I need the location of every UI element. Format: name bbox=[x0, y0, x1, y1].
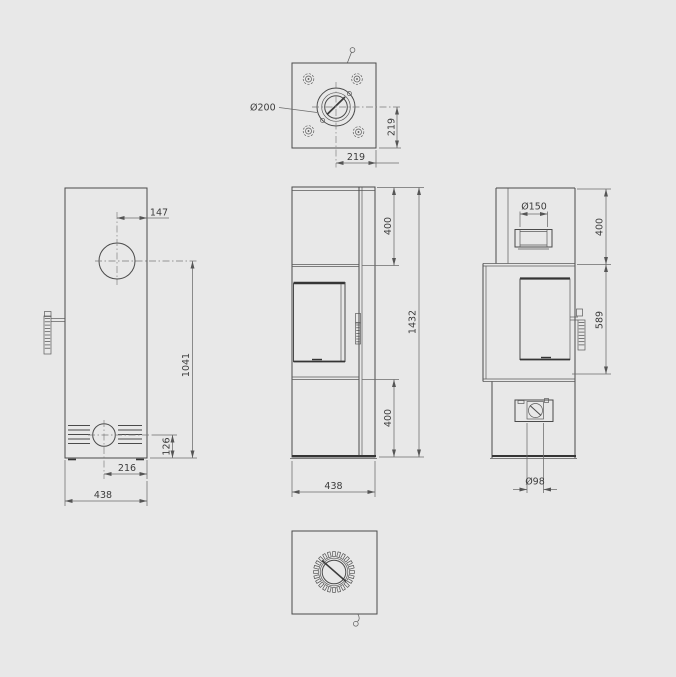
dim-label: Ø200 bbox=[250, 103, 276, 114]
dim-left-1041: 1041 bbox=[150, 261, 197, 458]
fastener-icon bbox=[353, 127, 364, 138]
dim-label: Ø150 bbox=[521, 202, 547, 213]
dim-right-589: 589 bbox=[572, 265, 611, 375]
dim-top-flue-diameter: Ø200 bbox=[250, 103, 317, 114]
technical-drawing: Ø200 219 219 bbox=[0, 0, 676, 677]
dim-label: 400 bbox=[383, 409, 394, 427]
dim-label: 438 bbox=[94, 490, 112, 501]
dim-label: 400 bbox=[383, 217, 394, 235]
fastener-icon bbox=[352, 74, 363, 85]
dim-left-126: 126 bbox=[152, 435, 177, 458]
air-rosette bbox=[314, 552, 355, 593]
left-handle-hatch bbox=[45, 319, 50, 349]
rosette-slots bbox=[314, 552, 355, 593]
dim-right-400: 400 bbox=[577, 189, 611, 265]
bottom-plate-outline bbox=[292, 531, 377, 614]
dim-label: 400 bbox=[595, 218, 606, 236]
dim-left-147: 147 bbox=[117, 208, 169, 219]
left-body-outline bbox=[65, 188, 147, 458]
dim-label: 589 bbox=[595, 311, 606, 329]
dim-right-flue-150: Ø150 bbox=[520, 202, 548, 228]
convection-vents bbox=[68, 426, 142, 444]
door-handle bbox=[44, 312, 65, 355]
bottom-view bbox=[292, 531, 377, 626]
fastener-icon bbox=[303, 126, 314, 137]
door-window bbox=[294, 282, 346, 362]
dim-label: 1041 bbox=[181, 353, 192, 377]
lifting-pin-icon bbox=[348, 48, 355, 63]
dim-label: 1432 bbox=[408, 310, 419, 334]
left-side-view: 147 1041 126 216 438 bbox=[44, 188, 199, 506]
stove-dimension-drawing: Ø200 219 219 bbox=[0, 0, 676, 677]
front-body-outline bbox=[292, 187, 375, 457]
front-view: 400 1432 400 438 bbox=[290, 187, 424, 497]
door-handle bbox=[570, 309, 585, 350]
dim-front-400-top: 400 bbox=[362, 188, 424, 266]
dim-label: 216 bbox=[118, 463, 136, 474]
dim-label: 219 bbox=[347, 152, 365, 163]
dim-top-219-vertical: 219 bbox=[379, 107, 401, 148]
dim-label: 126 bbox=[162, 437, 173, 455]
dim-label: 219 bbox=[387, 118, 398, 136]
right-side-view: Ø150 400 589 Ø98 bbox=[483, 188, 611, 493]
rear-flue-spigot bbox=[515, 230, 552, 250]
side-door-frame bbox=[520, 279, 570, 361]
door-handle bbox=[356, 314, 361, 345]
dim-right-98: Ø98 bbox=[513, 423, 557, 493]
air-inlet-box bbox=[515, 399, 553, 422]
fastener-icon bbox=[303, 74, 314, 85]
front-handle-hatch bbox=[356, 325, 360, 342]
right-handle-hatch bbox=[579, 323, 585, 345]
damper-cord-icon bbox=[353, 615, 359, 627]
dim-label: 147 bbox=[150, 208, 168, 219]
dim-left-216: 216 bbox=[104, 460, 147, 479]
dim-top-219-horizontal: 219 bbox=[336, 150, 399, 168]
right-body-outline bbox=[483, 188, 577, 459]
dim-front-400-bottom: 400 bbox=[362, 380, 399, 458]
dim-label: 438 bbox=[324, 481, 342, 492]
dim-label: Ø98 bbox=[525, 477, 545, 488]
top-view: Ø200 219 219 bbox=[250, 48, 401, 168]
dim-front-438: 438 bbox=[292, 461, 375, 497]
